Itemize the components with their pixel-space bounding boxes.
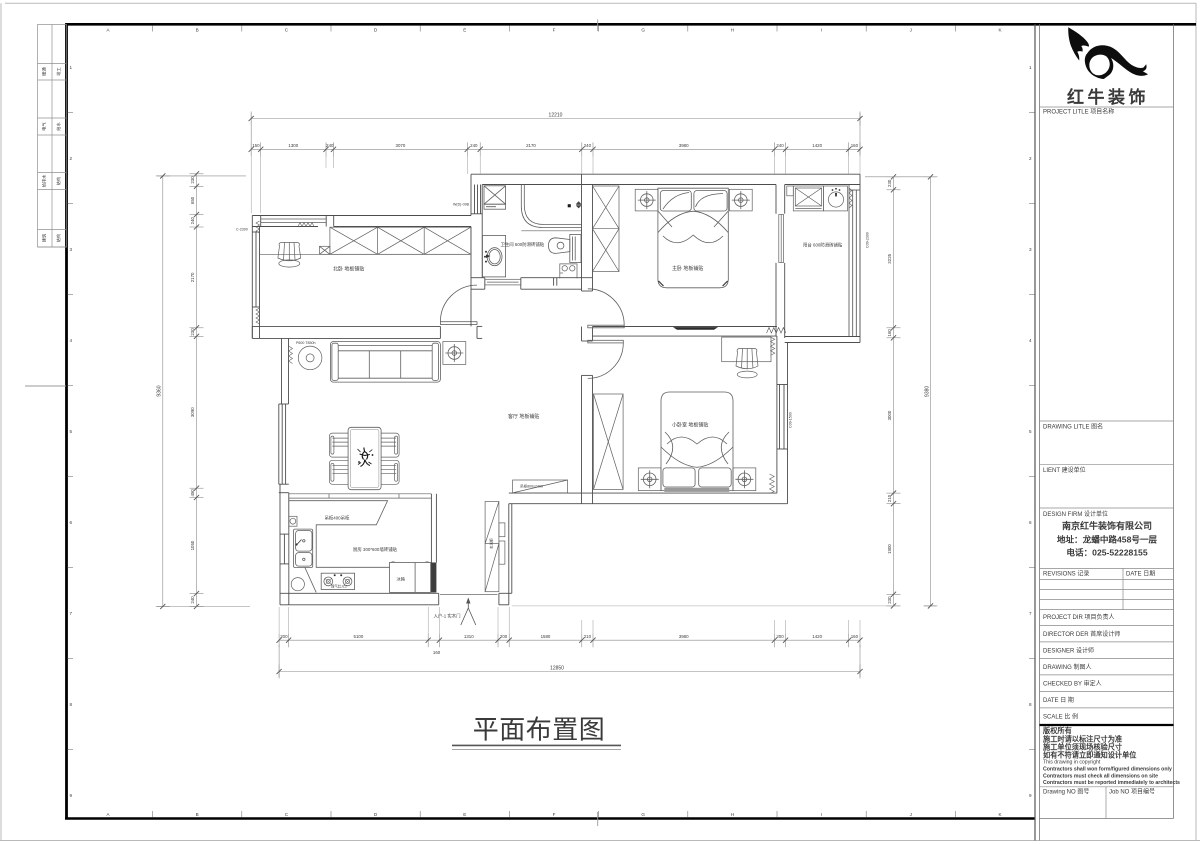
svg-text:230: 230	[887, 179, 892, 187]
svg-text:9: 9	[70, 793, 73, 798]
svg-text:PROJECT LITLE 项目名称: PROJECT LITLE 项目名称	[1043, 108, 1114, 116]
svg-text:J: J	[910, 812, 912, 817]
svg-text:3: 3	[1029, 247, 1032, 252]
svg-text:6: 6	[1029, 520, 1032, 525]
svg-text:B: B	[196, 28, 199, 33]
svg-text:G: G	[641, 812, 645, 817]
svg-text:Job NO 项目编号: Job NO 项目编号	[1109, 788, 1155, 796]
svg-text:DATE 日 期: DATE 日 期	[1043, 696, 1074, 704]
svg-text:吊柜800x2400: 吊柜800x2400	[520, 484, 543, 489]
svg-text:暖通: 暖通	[41, 67, 48, 76]
svg-text:160: 160	[887, 329, 892, 337]
svg-text:建筑: 建筑	[41, 233, 48, 242]
svg-text:阳台 600防滑砖铺贴: 阳台 600防滑砖铺贴	[803, 242, 843, 249]
svg-text:1420: 1420	[812, 634, 822, 639]
svg-text:Contractors must be reported i: Contractors must be reported immediately…	[1043, 780, 1180, 786]
svg-text:240: 240	[584, 143, 592, 148]
svg-text:E: E	[463, 28, 466, 33]
svg-text:1900: 1900	[887, 544, 892, 554]
svg-text:1310: 1310	[464, 634, 474, 639]
svg-text:240: 240	[190, 596, 195, 604]
svg-text:12210: 12210	[549, 113, 563, 119]
svg-text:3000: 3000	[887, 410, 892, 420]
svg-text:1: 1	[70, 65, 73, 70]
svg-text:结构: 结构	[55, 177, 62, 185]
svg-text:9360: 9360	[157, 385, 163, 396]
svg-text:4: 4	[70, 338, 73, 343]
svg-text:1420: 1420	[812, 143, 822, 148]
svg-text:12850: 12850	[550, 666, 564, 672]
svg-text:F: F	[553, 28, 556, 33]
svg-text:This drawing in copyright: This drawing in copyright	[1043, 760, 1101, 766]
svg-text:LIENT 建设单位: LIENT 建设单位	[1043, 466, 1086, 474]
svg-text:1050: 1050	[190, 540, 195, 550]
svg-text:240: 240	[326, 143, 334, 148]
svg-text:650: 650	[190, 196, 195, 204]
svg-text:1: 1	[1029, 65, 1032, 70]
svg-text:小卧室 地板铺贴: 小卧室 地板铺贴	[672, 422, 708, 429]
svg-text:煤气灶JZ2: 煤气灶JZ2	[331, 584, 347, 589]
svg-text:给排水: 给排水	[41, 174, 48, 187]
svg-text:5: 5	[70, 429, 73, 434]
svg-text:Contractors must check all dim: Contractors must check all dimensions on…	[1043, 774, 1158, 780]
svg-text:3225: 3225	[887, 253, 892, 263]
svg-text:3: 3	[70, 247, 73, 252]
svg-text:J: J	[910, 28, 912, 33]
svg-text:240: 240	[776, 143, 784, 148]
svg-text:150: 150	[252, 143, 260, 148]
svg-text:如有不符请立即通知设计单位: 如有不符请立即通知设计单位	[1043, 751, 1137, 760]
svg-text:3980: 3980	[679, 634, 689, 639]
svg-text:B: B	[196, 812, 199, 817]
svg-text:竣工: 竣工	[55, 67, 62, 75]
svg-text:DRAWING 制图人: DRAWING 制图人	[1043, 663, 1091, 671]
svg-text:8: 8	[70, 702, 73, 707]
svg-text:210: 210	[887, 494, 892, 502]
svg-text:Contractors shall won form/fig: Contractors shall won form/figured dimen…	[1043, 767, 1172, 773]
svg-text:160: 160	[851, 634, 859, 639]
svg-text:电气: 电气	[41, 122, 47, 131]
svg-text:SCALE 比 例: SCALE 比 例	[1043, 713, 1078, 721]
svg-text:Drawing NO 图号: Drawing NO 图号	[1043, 789, 1089, 796]
svg-text:C-2300: C-2300	[236, 228, 248, 232]
svg-text:3090: 3090	[190, 407, 195, 417]
svg-text:1300: 1300	[288, 143, 298, 148]
svg-text:结构: 结构	[55, 234, 62, 242]
svg-text:3980: 3980	[679, 143, 689, 148]
svg-text:I: I	[821, 28, 822, 33]
svg-text:7: 7	[70, 611, 73, 616]
svg-text:240: 240	[190, 216, 195, 224]
svg-text:5100: 5100	[354, 634, 364, 639]
svg-text:入户-1 实木门: 入户-1 实木门	[434, 613, 461, 620]
svg-text:1580: 1580	[541, 634, 551, 639]
svg-text:C09-1500: C09-1500	[789, 412, 793, 428]
svg-text:W(D)-09B: W(D)-09B	[453, 203, 470, 207]
svg-text:厨房 300*600墙砖铺贴: 厨房 300*600墙砖铺贴	[353, 546, 398, 553]
svg-text:160: 160	[433, 650, 441, 655]
svg-text:160: 160	[851, 143, 859, 148]
svg-text:9380: 9380	[925, 386, 931, 397]
svg-text:230: 230	[190, 328, 195, 336]
svg-text:3070: 3070	[396, 143, 406, 148]
svg-text:PROJECT DIR 项目负责人: PROJECT DIR 项目负责人	[1043, 613, 1115, 621]
svg-text:200: 200	[500, 634, 508, 639]
svg-text:H: H	[731, 28, 734, 33]
svg-text:红牛装饰: 红牛装饰	[1067, 87, 1149, 107]
svg-text:平面布置图: 平面布置图	[473, 716, 606, 745]
svg-text:G: G	[641, 28, 645, 33]
svg-text:I: I	[821, 812, 822, 817]
svg-text:240: 240	[470, 143, 478, 148]
svg-text:200: 200	[776, 634, 784, 639]
svg-text:4: 4	[1029, 338, 1032, 343]
svg-text:玄关柜: 玄关柜	[489, 538, 494, 549]
svg-text:2170: 2170	[526, 143, 536, 148]
svg-text:F: F	[553, 812, 556, 817]
svg-text:230: 230	[190, 176, 195, 184]
svg-text:吊柜400吊柜: 吊柜400吊柜	[325, 515, 350, 522]
svg-text:客厅 地板铺贴: 客厅 地板铺贴	[508, 413, 539, 420]
svg-text:210: 210	[584, 634, 592, 639]
svg-text:2: 2	[1029, 156, 1032, 161]
svg-text:冰箱: 冰箱	[397, 576, 405, 583]
svg-text:给水: 给水	[55, 122, 62, 131]
svg-text:DIRECTOR DER 首席设计师: DIRECTOR DER 首席设计师	[1043, 630, 1120, 638]
svg-text:6: 6	[70, 520, 73, 525]
svg-text:主卧 地板铺贴: 主卧 地板铺贴	[672, 265, 703, 272]
svg-text:南京红牛装饰有限公司: 南京红牛装饰有限公司	[1062, 520, 1152, 531]
svg-text:电话：025-52228155: 电话：025-52228155	[1066, 547, 1147, 558]
svg-text:E: E	[463, 812, 466, 817]
svg-text:地址：龙蟠中路458号一层: 地址：龙蟠中路458号一层	[1057, 534, 1158, 545]
svg-text:230: 230	[887, 596, 892, 604]
svg-text:2: 2	[70, 156, 73, 161]
svg-text:450: 450	[190, 489, 195, 497]
svg-text:DESIGNER 设计师: DESIGNER 设计师	[1043, 647, 1094, 655]
svg-text:DATE 日期: DATE 日期	[1126, 570, 1155, 578]
svg-text:5: 5	[1029, 429, 1032, 434]
svg-text:北卧 地板铺贴: 北卧 地板铺贴	[333, 266, 364, 273]
svg-text:卫生间 600防滑砖铺贴: 卫生间 600防滑砖铺贴	[501, 241, 545, 248]
svg-text:DRAWING LITLE 图名: DRAWING LITLE 图名	[1043, 423, 1103, 431]
svg-text:9: 9	[1029, 793, 1032, 798]
svg-text:CHECKED BY 审定人: CHECKED BY 审定人	[1043, 680, 1102, 688]
svg-text:REVISIONS 记录: REVISIONS 记录	[1043, 570, 1089, 578]
svg-text:C09-2300: C09-2300	[866, 232, 870, 248]
svg-text:7: 7	[1029, 611, 1032, 616]
svg-text:DESIGN FIRM 设计单位: DESIGN FIRM 设计单位	[1043, 510, 1108, 518]
svg-text:2170: 2170	[190, 272, 195, 282]
svg-text:P600 T850h: P600 T850h	[296, 341, 316, 345]
svg-text:8: 8	[1029, 702, 1032, 707]
svg-text:H: H	[731, 812, 734, 817]
svg-text:200: 200	[280, 634, 288, 639]
